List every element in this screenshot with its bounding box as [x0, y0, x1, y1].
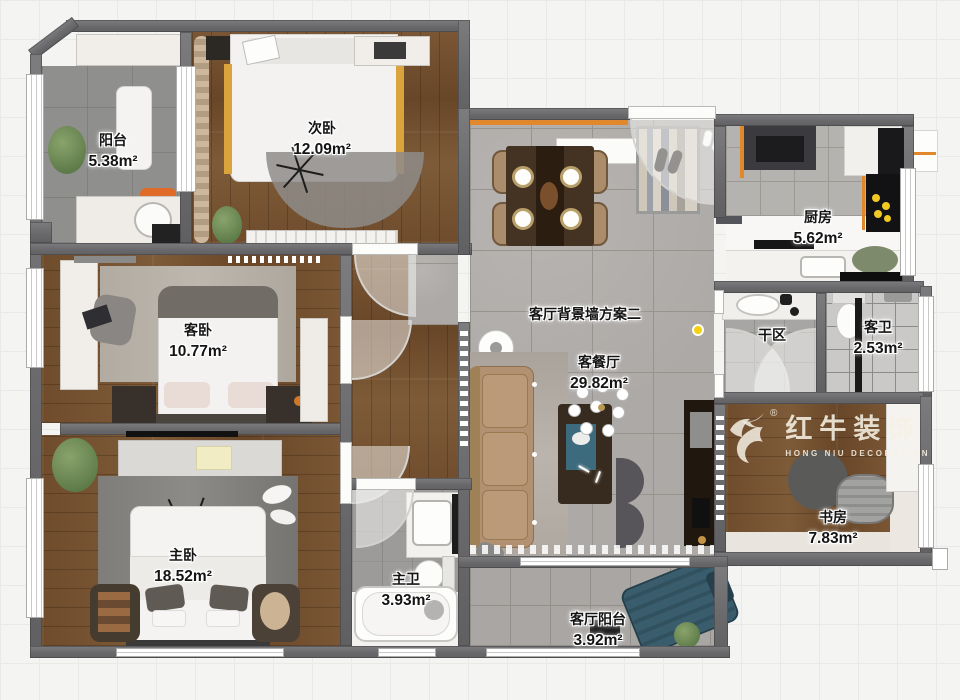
floor-plan-canvas: 阳台 5.38m² 次卧 12.09m² 客卧 10.77m² 主卧 18.52…: [0, 0, 960, 700]
dried-plant: [260, 592, 290, 630]
room-area: 5.62m²: [793, 230, 842, 248]
sofa-cushion: [482, 490, 528, 540]
room-area: 10.77m²: [169, 343, 227, 361]
room-name: 主卫: [381, 569, 430, 589]
room-label-balcony: 阳台 5.38m²: [88, 130, 137, 171]
flame-icon: [884, 215, 891, 222]
hongniu-bull-logo-icon: [724, 410, 768, 464]
flame-icon: [872, 194, 880, 202]
room-name: 阳台: [88, 130, 137, 150]
wall-left-column: [30, 222, 52, 243]
master-pillow-dark-right: [209, 584, 249, 612]
guest-bed-blanket: [158, 286, 278, 318]
wall-dash-marks: [460, 330, 468, 446]
dry-area-basin: [736, 294, 780, 316]
faucet: [780, 294, 792, 305]
plate: [560, 166, 582, 188]
registered-mark: ®: [770, 408, 777, 419]
room-area: 7.83m²: [808, 530, 857, 548]
garland-decor: [228, 256, 322, 263]
room-name: 客餐厅: [570, 352, 628, 372]
balcony-slider-door: [520, 557, 690, 566]
watermark-brand: 红牛装饰: [785, 416, 930, 443]
annotation-text: 客厅背景墙方案二: [529, 304, 641, 324]
wall-drybath-divider: [816, 293, 826, 396]
room-area: 18.52m²: [154, 568, 212, 586]
sofa-leg: [532, 520, 537, 525]
door-jamb: [714, 374, 724, 398]
room-name: 次卧: [293, 118, 351, 138]
wall-second-bedroom-right: [458, 20, 470, 120]
master-bedroom-bottom-window: [116, 648, 284, 657]
wall-study-bottom: [714, 552, 936, 566]
room-label-master-bath: 主卫 3.93m²: [381, 569, 430, 610]
wall-kitchen-top: [714, 114, 914, 126]
room-name: 客卧: [169, 320, 227, 340]
faucet: [790, 307, 799, 316]
master-bedroom-door-leaf: [340, 442, 352, 504]
guest-bath-window: [918, 296, 934, 392]
balcony-plant: [48, 126, 86, 174]
wall-shelf: [74, 256, 136, 263]
watermark: ® 红牛装饰 HONG NIU DECORATION: [724, 410, 930, 464]
plate: [512, 166, 534, 188]
room-area: 29.82m²: [570, 375, 628, 393]
plate: [512, 208, 534, 230]
centerpiece: [540, 182, 558, 210]
tv-decor: [690, 412, 712, 448]
room-label-living-dining: 客餐厅 29.82m²: [570, 352, 628, 393]
balcony-window: [26, 74, 44, 220]
entry-door-leaf: [628, 106, 716, 119]
second-bedroom-plant: [212, 206, 242, 244]
watermark-text-block: 红牛装饰 HONG NIU DECORATION: [785, 416, 930, 458]
wall-living-left-upper: [458, 108, 470, 255]
wall-kitchen-bottom: [714, 281, 924, 293]
study-window: [918, 464, 934, 548]
tv-decor-dark: [692, 498, 710, 528]
room-label-guest-bedroom: 客卧 10.77m²: [169, 320, 227, 361]
marker-dot: [692, 324, 704, 336]
room-name: 主卧: [154, 545, 212, 565]
balcony-cabinet: [76, 34, 182, 66]
room-label-master-bedroom: 主卧 18.52m²: [154, 545, 212, 586]
flame-icon: [874, 210, 882, 218]
room-name: 客厅阳台: [570, 609, 626, 629]
kitchen-window: [900, 168, 916, 276]
wall-dash-marks: [716, 416, 724, 520]
balcony-glass-door: [176, 66, 196, 192]
guest-nightstand-left: [112, 386, 156, 423]
room-label-study: 书房 7.83m²: [808, 507, 857, 548]
room-label-dry-area: 干区: [758, 325, 786, 345]
balcony-plant-small: [674, 622, 700, 648]
open-book: [196, 446, 232, 470]
wall-study-top: [714, 392, 924, 404]
dresser-tv: [374, 42, 406, 59]
guest-bedroom-window: [26, 268, 44, 368]
wall-kitchen-left: [714, 126, 726, 218]
room-name: 厨房: [793, 207, 842, 227]
sofa-cushion: [482, 432, 528, 486]
room-label-second-bedroom: 次卧 12.09m²: [293, 118, 351, 159]
second-bedroom-door-leaf: [352, 243, 418, 255]
guest-bedroom-door-leaf: [340, 316, 352, 384]
plate: [560, 208, 582, 230]
door-jamb: [714, 290, 724, 314]
room-label-kitchen: 厨房 5.62m²: [793, 207, 842, 248]
room-name: 干区: [758, 325, 786, 345]
magazine: [98, 592, 130, 632]
flame-icon: [882, 202, 890, 210]
wall-top: [66, 20, 470, 32]
curtain: [194, 36, 209, 243]
master-bedroom-window: [26, 478, 44, 618]
living-top-accent-strip: [470, 120, 628, 125]
fringe-decor: [470, 545, 714, 554]
wall-living-balcony-right: [714, 566, 728, 658]
cooktop: [756, 136, 804, 162]
watermark-subtitle: HONG NIU DECORATION: [785, 449, 930, 458]
vanity-sink: [412, 500, 452, 546]
corner-window-block: [932, 548, 948, 570]
sofa-leg: [532, 452, 537, 457]
master-plant: [52, 438, 98, 492]
sofa-leg: [532, 382, 537, 387]
kitchen-mat: [852, 246, 898, 274]
room-area: 5.38m²: [88, 153, 137, 171]
wall-living-top: [458, 108, 630, 120]
stove-accent-strip: [862, 176, 865, 230]
room-area: 3.92m²: [570, 632, 626, 650]
wall-plan-annotation: 客厅背景墙方案二: [529, 304, 641, 324]
master-pillow-white-left: [152, 610, 186, 627]
gold-vase: [698, 536, 706, 544]
master-bath-door-leaf: [356, 478, 416, 490]
sofa-cushion: [482, 374, 528, 428]
room-name: 书房: [808, 507, 857, 527]
room-label-guest-bath: 客卫 2.53m²: [853, 317, 902, 358]
master-pillow-white-right: [206, 610, 240, 627]
cabinet-accent-strip: [740, 126, 744, 178]
blanket-edge-left: [224, 64, 232, 174]
room-area: 12.09m²: [293, 141, 351, 159]
master-bath-window: [378, 648, 436, 657]
room-label-living-balcony: 客厅阳台 3.92m²: [570, 609, 626, 650]
room-area: 2.53m²: [853, 340, 902, 358]
room-name: 客卫: [853, 317, 902, 337]
wall-tv: [126, 431, 238, 437]
guest-closet: [300, 318, 328, 422]
guest-bed-pillow-left: [164, 382, 210, 408]
room-area: 3.93m²: [381, 592, 430, 610]
